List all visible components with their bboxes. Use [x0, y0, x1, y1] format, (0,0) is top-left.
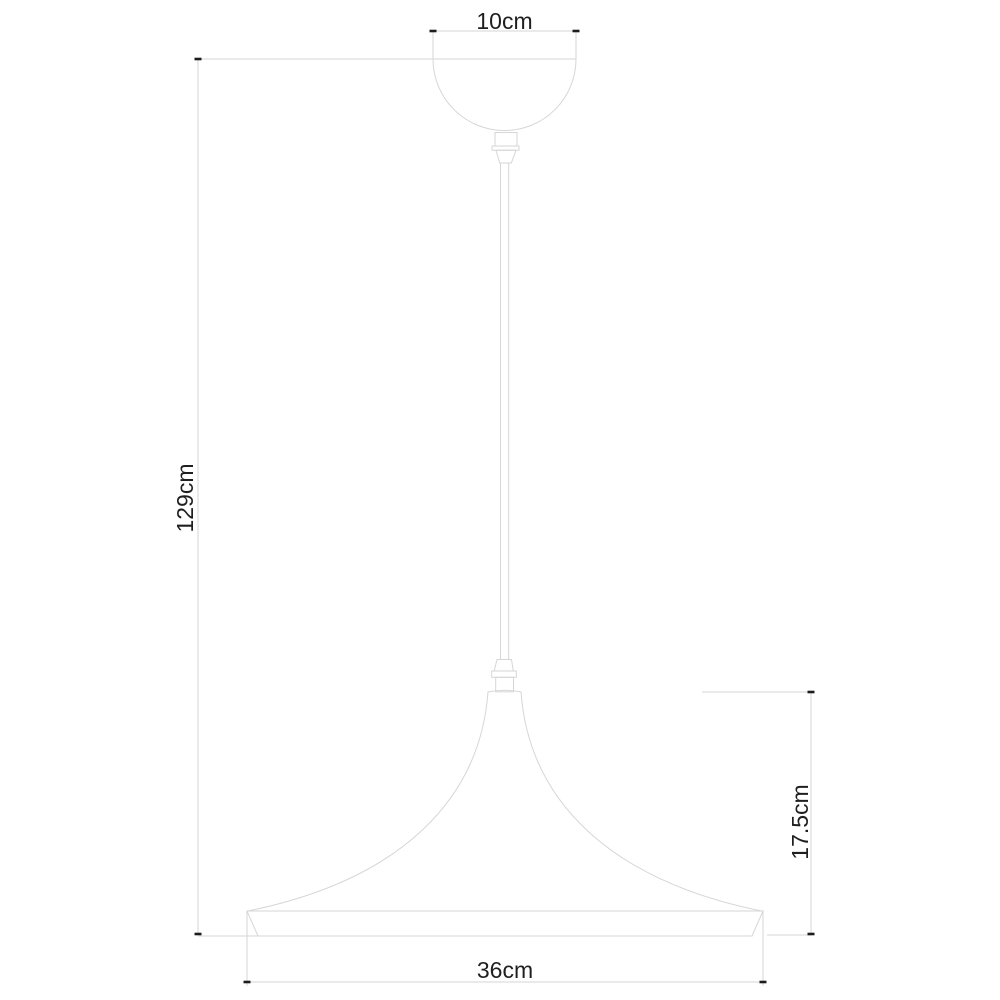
dimension-tick	[244, 981, 251, 984]
dimension-canopy-width: 10cm	[430, 8, 580, 59]
pendant-lamp-dimension-drawing: 10cm 129cm 17.5cm 36cm	[0, 0, 1000, 1000]
dimension-tick	[430, 30, 437, 33]
dimension-label-canopy-width: 10cm	[476, 8, 532, 34]
lamp-shade-body	[248, 690, 762, 911]
dimension-overall-height: 129cm	[172, 58, 433, 936]
dimension-tick	[573, 30, 580, 33]
ceiling-canopy	[433, 59, 576, 131]
shade-cord-grip-taper	[494, 660, 513, 672]
shade-cord-grip-ring	[492, 671, 517, 677]
dimension-tick	[808, 691, 815, 694]
dimension-tick	[808, 933, 815, 936]
dimension-tick	[195, 58, 202, 61]
dimension-label-overall-height: 129cm	[172, 463, 198, 532]
dimension-tick	[760, 981, 767, 984]
shade-neck	[496, 677, 514, 692]
dimension-label-shade-diameter: 36cm	[477, 957, 533, 983]
dimension-label-shade-height: 17.5cm	[787, 784, 813, 859]
technical-drawing-svg: 10cm 129cm 17.5cm 36cm	[0, 0, 1000, 1000]
dimension-shade-height: 17.5cm	[702, 691, 815, 936]
canopy-cord-grip-flange	[492, 146, 519, 150]
lamp-outline-group	[247, 59, 763, 936]
canopy-cord-grip-taper	[496, 150, 516, 163]
canopy-cord-grip-body	[495, 133, 517, 147]
dimension-tick	[195, 933, 202, 936]
lamp-shade-rim	[247, 911, 763, 936]
